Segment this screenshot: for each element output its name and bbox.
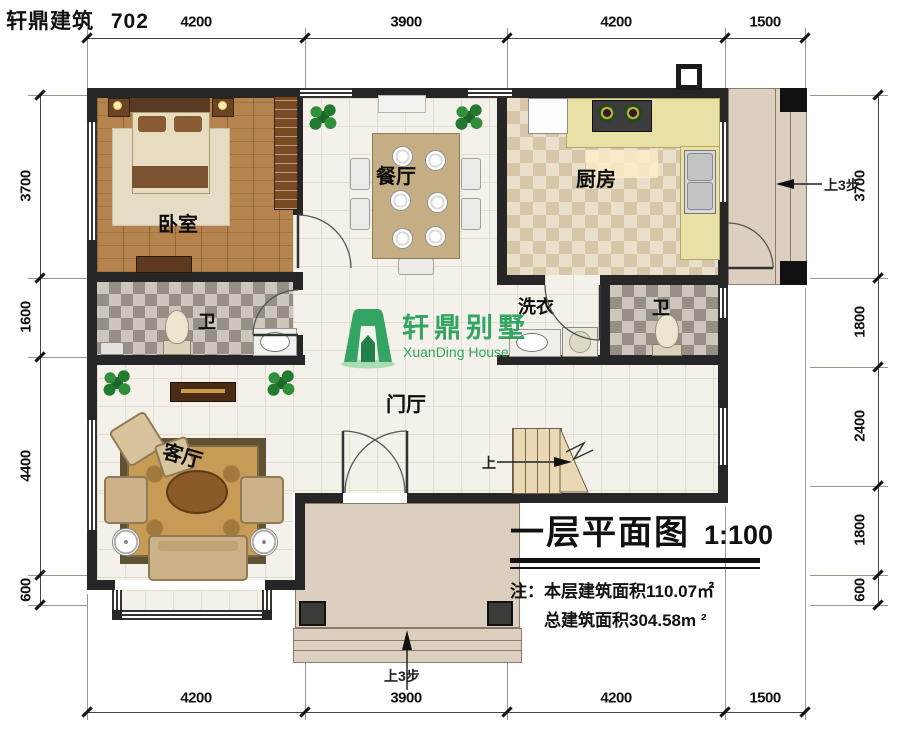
room-label-bath-right: 卫: [652, 294, 670, 320]
wall-bedroom-south: [87, 272, 303, 282]
pillow: [174, 116, 202, 132]
room-label-dining: 餐厅: [376, 160, 416, 189]
entry-porch-steps-label: 上3步: [384, 666, 420, 686]
stair-up-label: 上: [482, 453, 496, 473]
dining-table: [372, 133, 460, 259]
dim-left-2: 1600: [18, 301, 35, 332]
armchair-right: [240, 476, 284, 524]
dim-left-1: 3700: [18, 170, 35, 201]
title-block: 一层平面图 1:100 注：本层建筑面积110.07㎡ 总建筑面积304.58m…: [510, 505, 780, 631]
dim-left-3: 4400: [18, 450, 35, 481]
dim-line-right: [878, 95, 879, 605]
brand-name: 轩鼎建筑: [6, 10, 94, 33]
room-label-bedroom: 卧室: [158, 208, 198, 237]
dining-chair: [350, 198, 370, 230]
bay-window: [122, 610, 262, 620]
wall-kitchen-south: [600, 275, 728, 285]
pillow: [138, 116, 166, 132]
wall-kitchen-south: [497, 275, 545, 285]
washer-drum: [569, 331, 591, 353]
bed-headboard: [130, 98, 210, 112]
dim-top-3: 4200: [600, 14, 631, 31]
hall-window: [718, 408, 728, 465]
coffee-table: [166, 470, 228, 514]
burner: [624, 104, 642, 122]
plan-scale: 1:100: [704, 520, 773, 551]
dim-line-top: [87, 38, 805, 39]
lamp: [218, 101, 227, 110]
hall-console: [170, 382, 236, 402]
plan-number: 702: [111, 10, 149, 33]
room-label-foyer: 门厅: [386, 388, 426, 417]
dim-bottom-3: 4200: [600, 690, 631, 707]
bed-blanket: [132, 166, 208, 188]
logo-name-cn: 轩鼎别墅: [402, 306, 530, 345]
bay-side-window: [262, 590, 272, 610]
dining-window: [300, 88, 352, 98]
toilet: [165, 310, 189, 344]
porch-step-line: [775, 89, 776, 284]
bay-window-floor: [117, 590, 267, 610]
dim-top-2: 3900: [390, 14, 421, 31]
plate: [392, 228, 413, 249]
wall-kitchen-west: [497, 88, 507, 285]
dim-right-5: 600: [852, 578, 869, 602]
console-table: [378, 95, 426, 113]
logo: 轩鼎别墅 XuanDing House: [340, 300, 540, 372]
fridge: [528, 98, 568, 134]
dining-chair: [398, 258, 434, 275]
entry-porch-column: [299, 601, 326, 626]
dim-top-1: 4200: [180, 14, 211, 31]
wall-living-east: [295, 493, 305, 590]
wall-bath-east: [293, 282, 303, 290]
sink-basin: [687, 153, 713, 181]
wall-south-right: [407, 493, 728, 503]
step-line: [294, 650, 521, 651]
sofa: [148, 535, 248, 581]
wall-bath-south: [87, 355, 305, 365]
porch-step-line: [790, 89, 791, 284]
plate: [390, 190, 411, 211]
dim-line-bottom: [87, 712, 805, 713]
bay-side-window: [112, 590, 122, 610]
plant: [100, 366, 134, 400]
bath-right-window: [718, 288, 728, 318]
dim-line-left: [40, 95, 41, 605]
dim-bottom-1: 4200: [180, 690, 211, 707]
floor-plan-sheet: 轩鼎建筑 702 4200 3900 4200 1500 4200 3900 4…: [0, 0, 900, 750]
plan-title: 一层平面图: [510, 505, 690, 554]
plate: [425, 150, 446, 171]
bedroom-window: [87, 122, 97, 240]
dim-left-4: 600: [18, 578, 35, 602]
sofa-back: [158, 541, 238, 551]
sheet-header: 轩鼎建筑 702: [6, 5, 149, 35]
dining-chair: [461, 158, 481, 190]
wall-laundry-east: [600, 275, 610, 365]
dim-bottom-4: 1500: [749, 690, 780, 707]
room-label-kitchen: 厨房: [576, 163, 616, 192]
bay-wall: [262, 610, 272, 620]
dim-top-4: 1500: [749, 14, 780, 31]
side-table: [112, 528, 140, 556]
wardrobe: [274, 96, 298, 210]
note-line-2: 总建筑面积304.58m ²: [544, 606, 780, 631]
side-porch: [728, 88, 807, 285]
ext-line: [805, 288, 806, 720]
armchair-left: [104, 476, 148, 524]
ext-line: [87, 594, 88, 720]
hall-console-handle: [181, 389, 225, 393]
flue-box: [676, 64, 702, 90]
room-label-bath-left: 卫: [198, 308, 216, 334]
bath-sink: [260, 332, 290, 352]
logo-house-icon: [340, 302, 396, 370]
dim-right-3: 2400: [852, 410, 869, 441]
plate: [427, 192, 448, 213]
wall-south-left: [87, 580, 115, 590]
dining-chair: [350, 158, 370, 190]
dim-right-2: 1800: [852, 306, 869, 337]
porch-column: [780, 261, 807, 285]
side-porch-steps-label: 上3步: [824, 175, 860, 195]
plant: [452, 100, 486, 134]
stairs: [512, 428, 562, 494]
step-line: [294, 640, 521, 641]
porch-column: [780, 88, 807, 112]
plate: [425, 226, 446, 247]
dresser: [136, 256, 192, 273]
dining-chair: [461, 198, 481, 230]
plant: [306, 100, 340, 134]
entry-steps: [293, 628, 522, 663]
lamp: [113, 101, 122, 110]
living-window: [87, 420, 97, 530]
dim-bottom-2: 3900: [390, 690, 421, 707]
note-line-1: 注：本层建筑面积110.07㎡: [510, 577, 780, 602]
dining-window-2: [468, 88, 512, 98]
shower-fixture: [100, 342, 124, 355]
title-rule-thick: [510, 558, 760, 563]
burner: [598, 104, 616, 122]
plant: [264, 366, 298, 400]
sink-basin: [687, 182, 713, 210]
bay-wall: [112, 610, 122, 620]
logo-name-en: XuanDing House: [403, 344, 509, 360]
side-table: [250, 528, 278, 556]
title-rule-thin: [510, 567, 760, 569]
dim-right-4: 1800: [852, 514, 869, 545]
